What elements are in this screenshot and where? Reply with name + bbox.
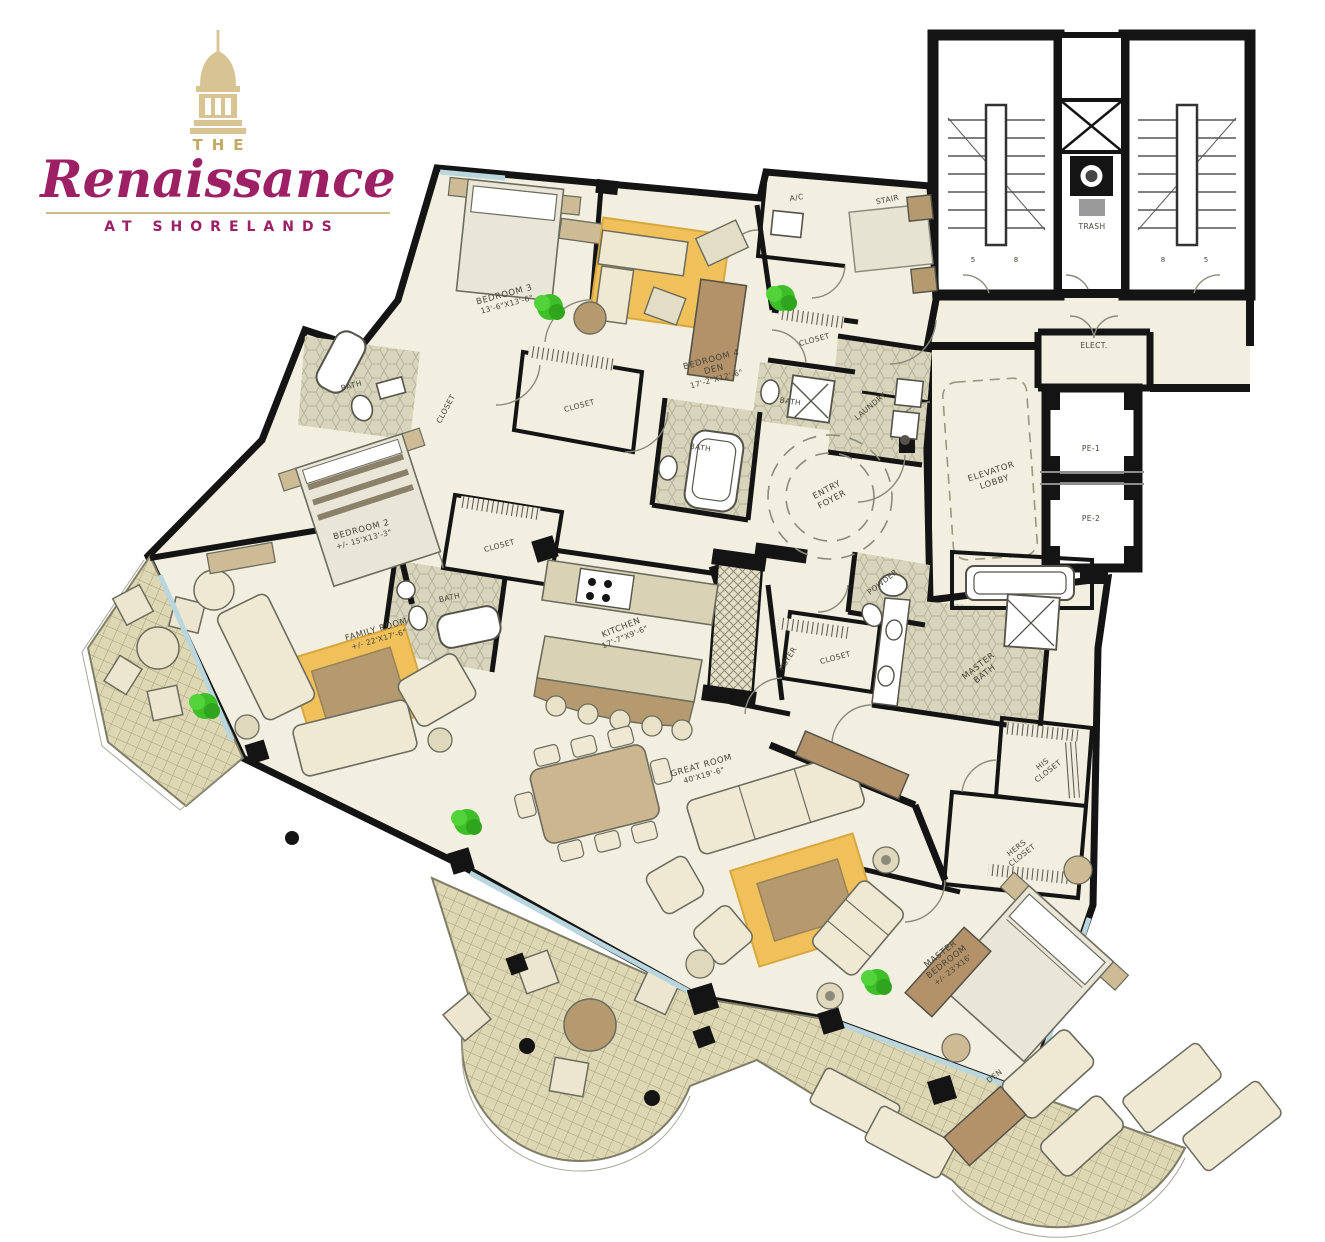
stairwell-left: 5 8 bbox=[933, 35, 1059, 295]
room-label-pe1: PE-1 bbox=[1082, 444, 1100, 453]
stair-number: 5 bbox=[1204, 256, 1208, 264]
room-label-trash: TRASH bbox=[1077, 222, 1105, 231]
elect-floor bbox=[1038, 330, 1150, 388]
private-elevators: PE-1 PE-2 bbox=[1040, 388, 1144, 568]
stair-number: 8 bbox=[1161, 256, 1165, 264]
stair-number: 5 bbox=[971, 256, 975, 264]
room-label-pe2: PE-2 bbox=[1082, 514, 1100, 523]
floor-plan: 5 8 8 5 bbox=[0, 0, 1325, 1242]
room-label-elect: ELECT. bbox=[1080, 341, 1107, 350]
trash-room: TRASH bbox=[1059, 35, 1124, 296]
corridor-floor-right bbox=[1150, 288, 1250, 388]
stairwell-right: 8 5 bbox=[1124, 35, 1250, 295]
stair-number: 8 bbox=[1014, 256, 1018, 264]
floorplan-page: THE Renaissance AT SHORELANDS bbox=[0, 0, 1325, 1242]
service-core: 5 8 8 5 bbox=[890, 35, 1255, 608]
